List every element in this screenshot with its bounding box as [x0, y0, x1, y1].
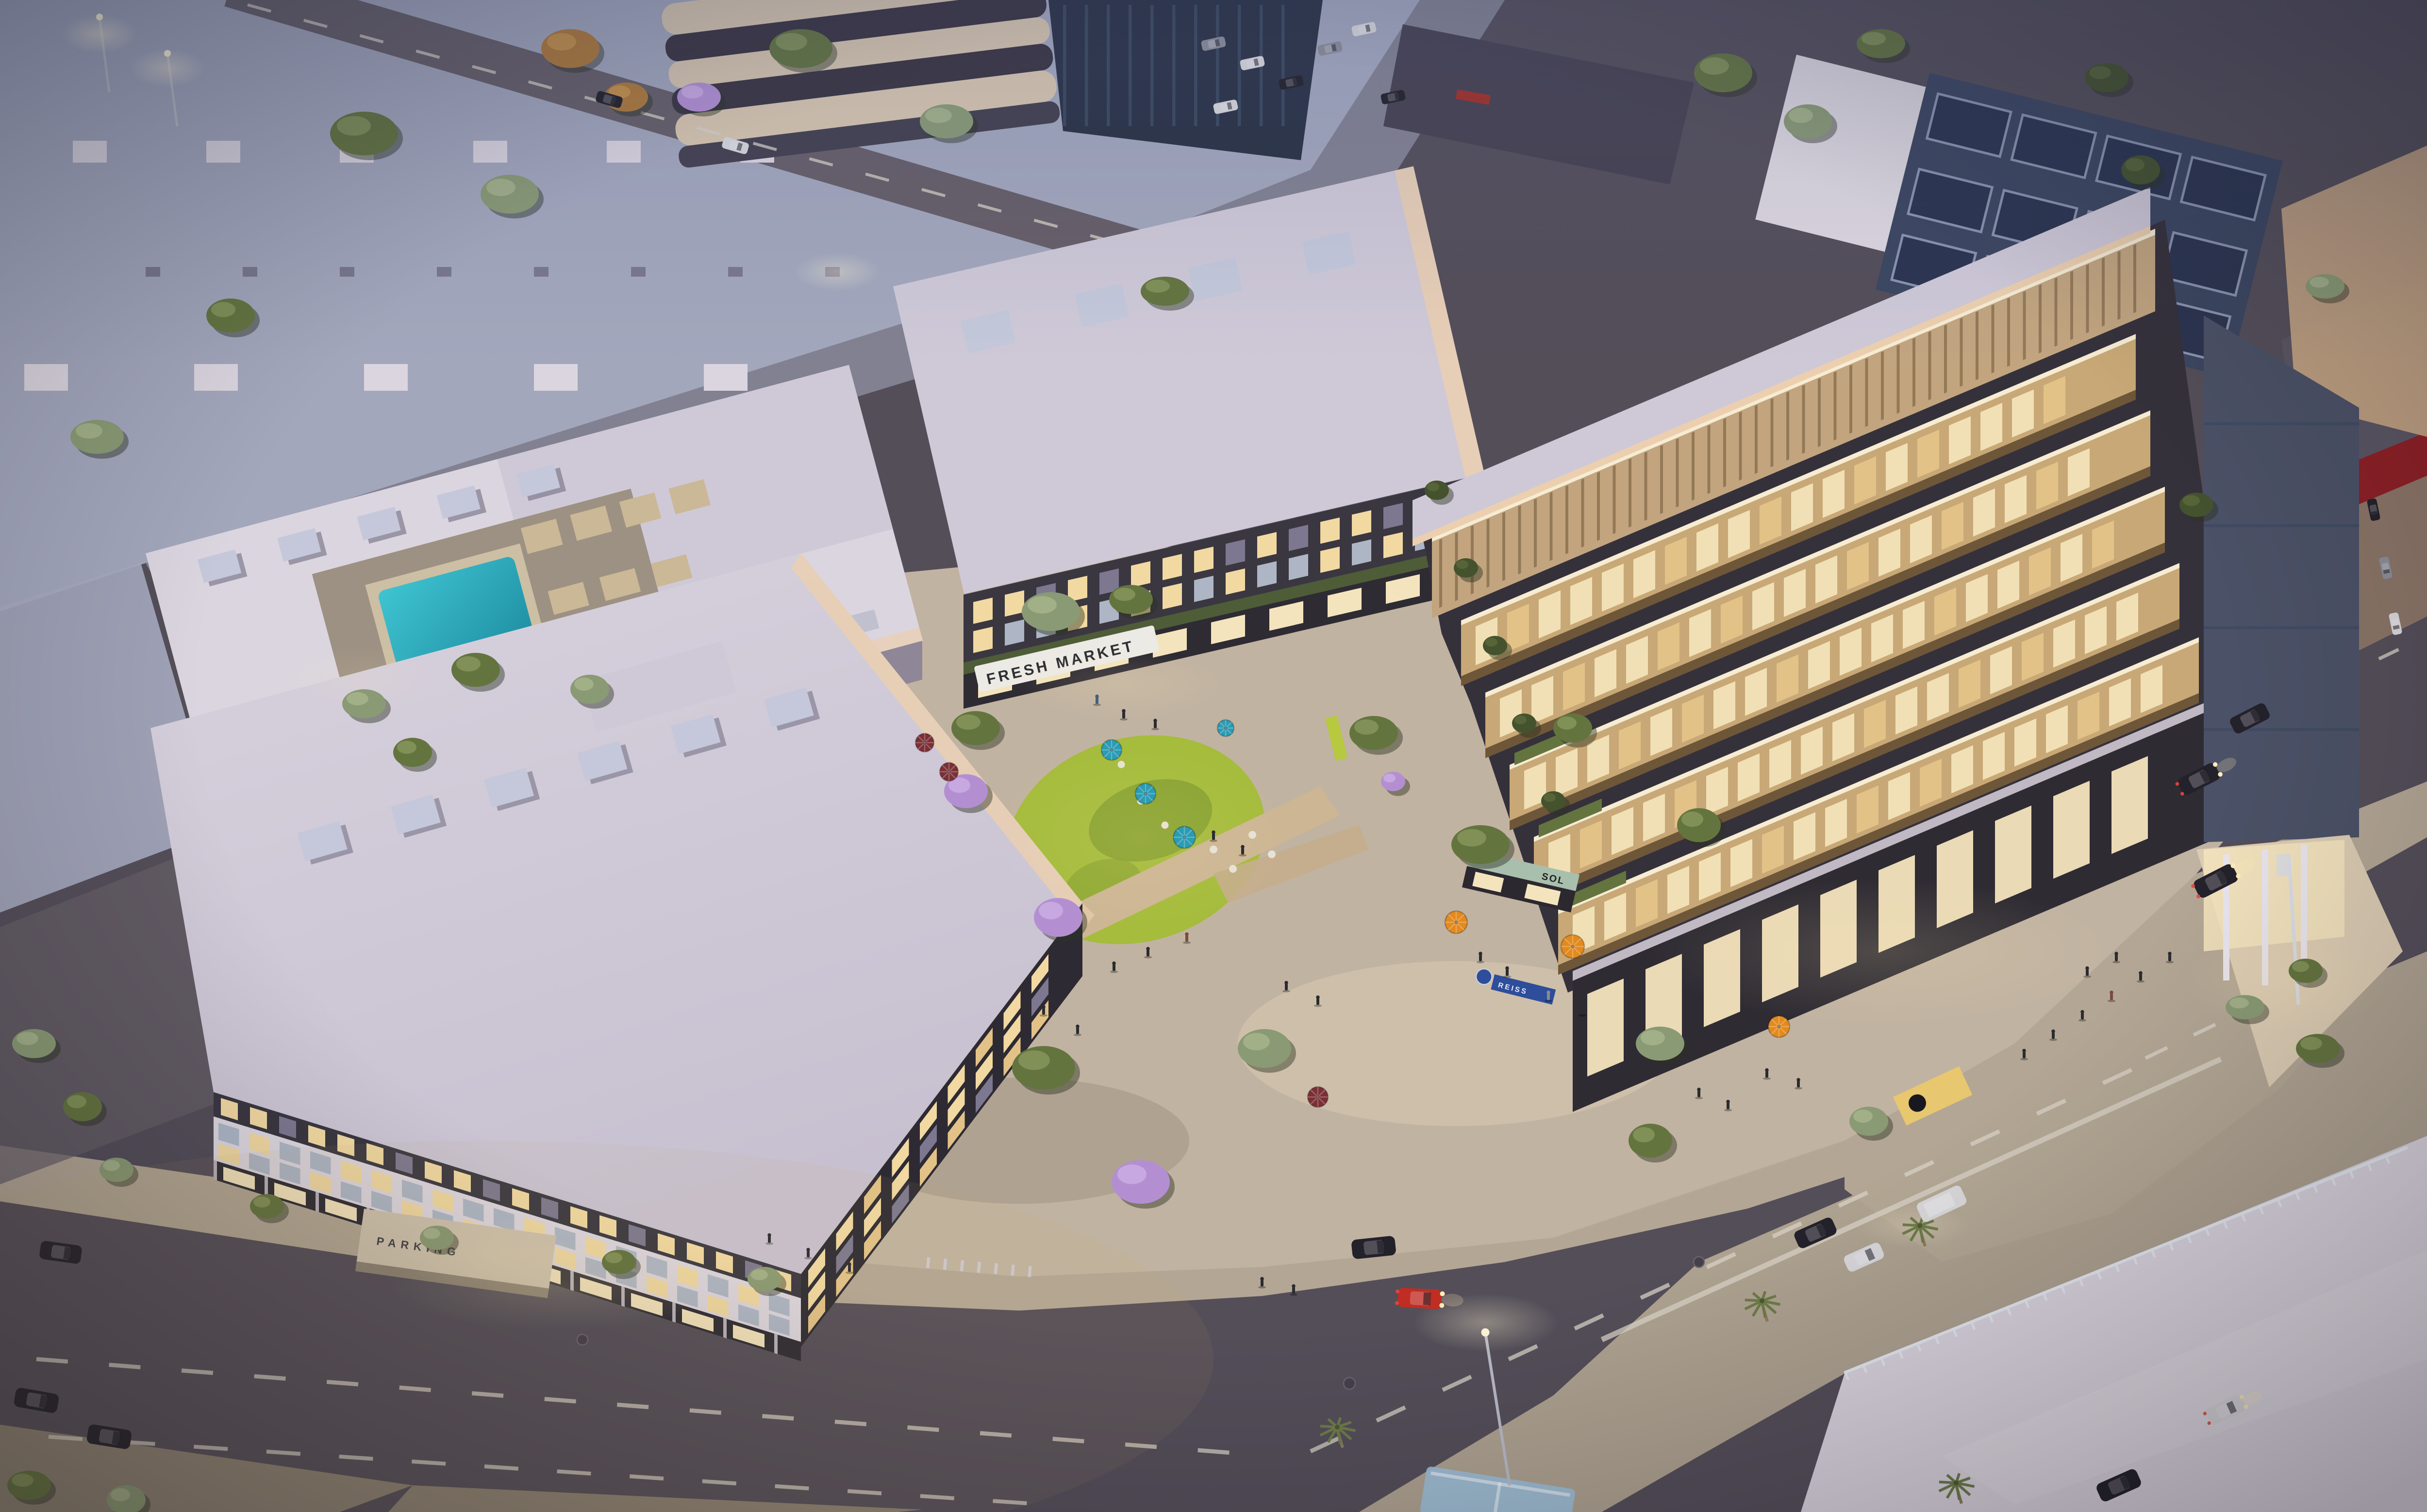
aerial-rendering: STAPLES [0, 0, 2427, 1512]
vignette [0, 0, 2427, 1512]
rendering-canvas: STAPLES [0, 0, 2427, 1512]
